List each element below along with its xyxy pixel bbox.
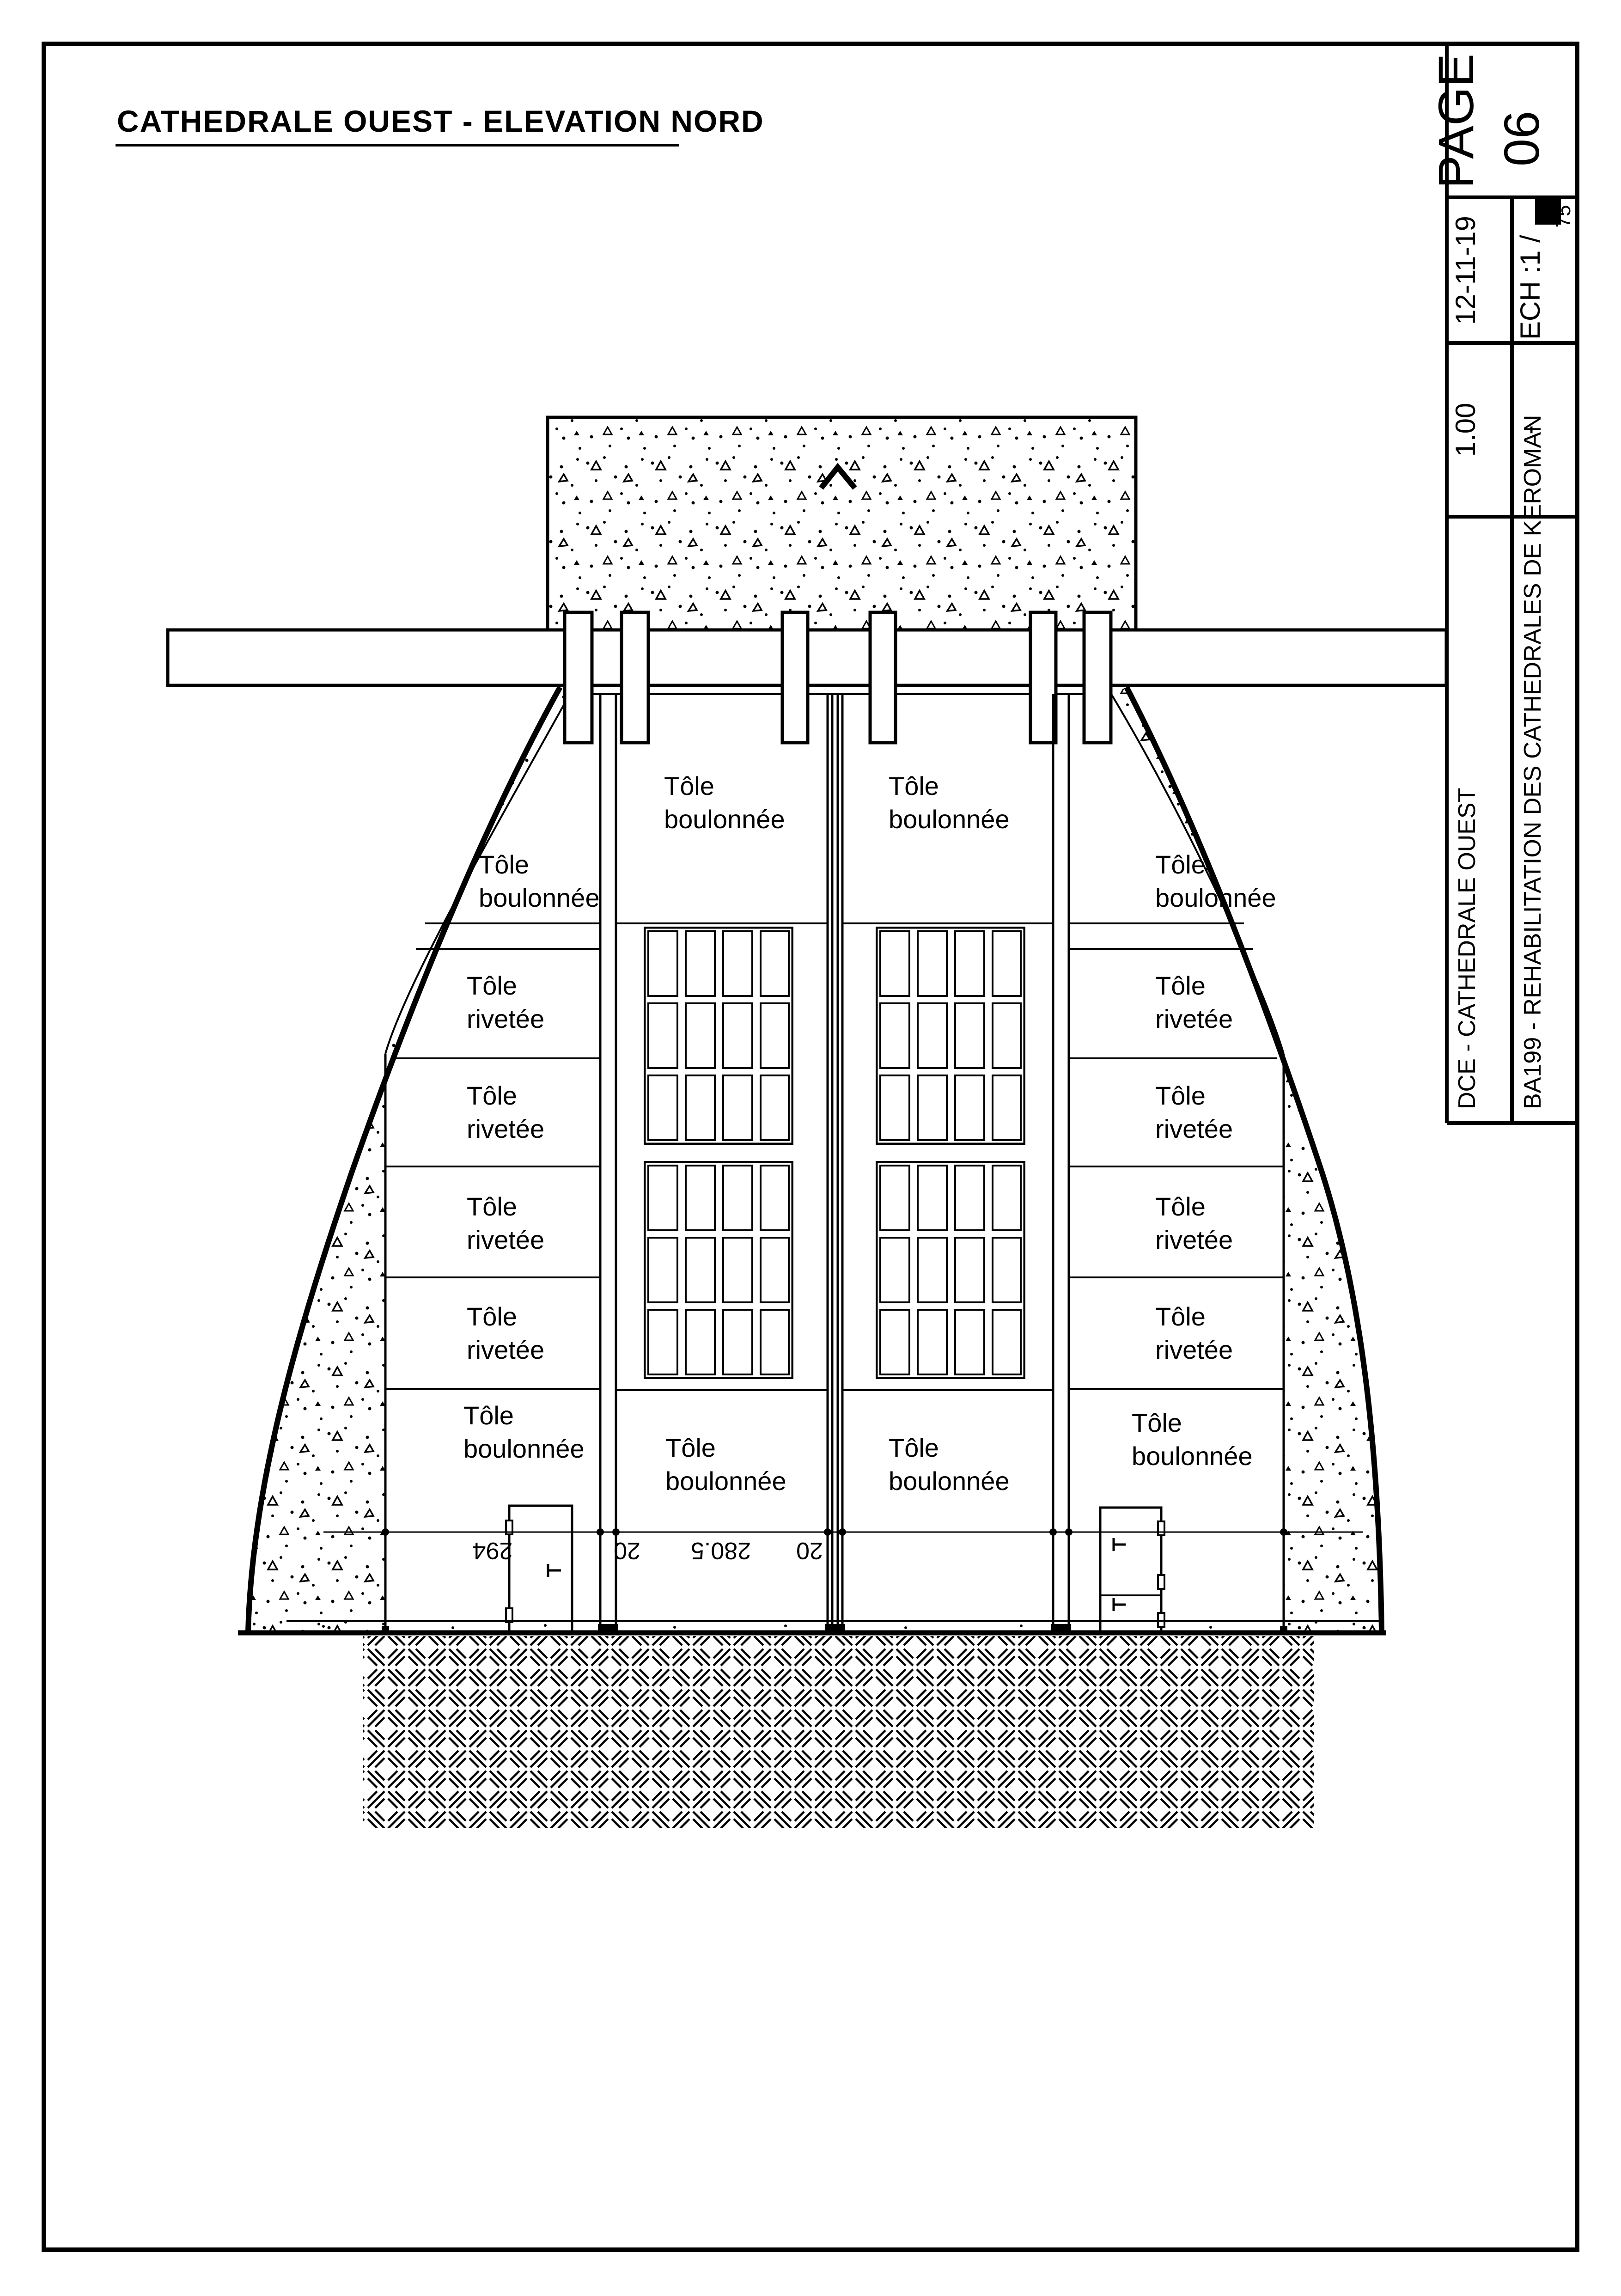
hinge-icon xyxy=(1158,1521,1164,1535)
window-grid xyxy=(645,928,792,1144)
page-number: 06 xyxy=(1493,111,1549,166)
concrete-cap-block xyxy=(548,417,1136,630)
panel-label: Tôle xyxy=(463,1401,514,1430)
version-value: 1.00 xyxy=(1450,403,1481,457)
panel-label: rivetée xyxy=(1155,1225,1233,1254)
post xyxy=(565,612,592,743)
panel-label: boulonnée xyxy=(665,1466,786,1496)
scale-label: ECH :1 / xyxy=(1515,235,1546,340)
panel-label: Tôle xyxy=(1155,1302,1206,1331)
panel-label: Tôle xyxy=(479,850,529,879)
elevation-drawing-sheet: CATHEDRALE OUEST - ELEVATION NORD PAGE 0… xyxy=(0,0,1621,2294)
panel-label: Tôle xyxy=(1155,971,1206,1000)
panel-label: boulonnée xyxy=(664,805,785,834)
dim-text: 20 xyxy=(796,1537,823,1564)
panel-label: Tôle xyxy=(1155,850,1206,879)
window-grid xyxy=(645,1162,792,1378)
dim-text: 294 xyxy=(473,1537,513,1564)
panel-label: Tôle xyxy=(889,1433,939,1462)
panel-label: boulonnée xyxy=(889,1466,1010,1496)
panel-label: boulonnée xyxy=(463,1434,585,1463)
dim-text: 280.5 xyxy=(691,1537,751,1564)
project-title: BA199 - REHABILITATION DES CATHEDRALES D… xyxy=(1519,415,1546,1109)
panel-label: Tôle xyxy=(467,971,517,1000)
scale-denominator: 75 xyxy=(1552,205,1575,228)
panel-label: Tôle xyxy=(664,771,714,800)
page-label: PAGE xyxy=(1428,54,1484,189)
panel-label: rivetée xyxy=(467,1004,544,1033)
post xyxy=(870,612,896,743)
panel-label: Tôle xyxy=(467,1192,517,1221)
panel-label: Tôle xyxy=(665,1433,716,1462)
drawing-title: CATHEDRALE OUEST - ELEVATION NORD xyxy=(117,104,764,138)
panel-label: rivetée xyxy=(1155,1114,1233,1143)
paper xyxy=(0,0,1621,2294)
panel-label: boulonnée xyxy=(889,805,1010,834)
post xyxy=(782,612,808,743)
panel-label: Tôle xyxy=(467,1081,517,1110)
panel-label: rivetée xyxy=(1155,1335,1233,1364)
post xyxy=(1084,612,1111,743)
right-door xyxy=(1100,1508,1164,1631)
panel-label: rivetée xyxy=(1155,1004,1233,1033)
panel-label: boulonnée xyxy=(1155,883,1276,912)
panel-label: rivetée xyxy=(467,1225,544,1254)
date-value: 12-11-19 xyxy=(1450,216,1481,325)
panel-label: Tôle xyxy=(1155,1192,1206,1221)
hinge-icon xyxy=(1158,1575,1164,1589)
dim-text: 20 xyxy=(614,1537,640,1564)
panel-label: rivetée xyxy=(467,1114,544,1143)
panel-label: Tôle xyxy=(889,771,939,800)
panel-label: rivetée xyxy=(467,1335,544,1364)
panel-label: Tôle xyxy=(1132,1408,1182,1437)
ground-hatch xyxy=(363,1636,1314,1828)
left-door xyxy=(506,1506,572,1631)
phase-title: DCE - CATHEDRALE OUEST xyxy=(1454,788,1481,1109)
window-grid xyxy=(877,928,1024,1144)
post xyxy=(622,612,648,743)
panel-label: Tôle xyxy=(467,1302,517,1331)
window-grid xyxy=(877,1162,1024,1378)
panel-label: boulonnée xyxy=(1132,1441,1253,1471)
panel-label: Tôle xyxy=(1155,1081,1206,1110)
panel-label: boulonnée xyxy=(479,883,600,912)
